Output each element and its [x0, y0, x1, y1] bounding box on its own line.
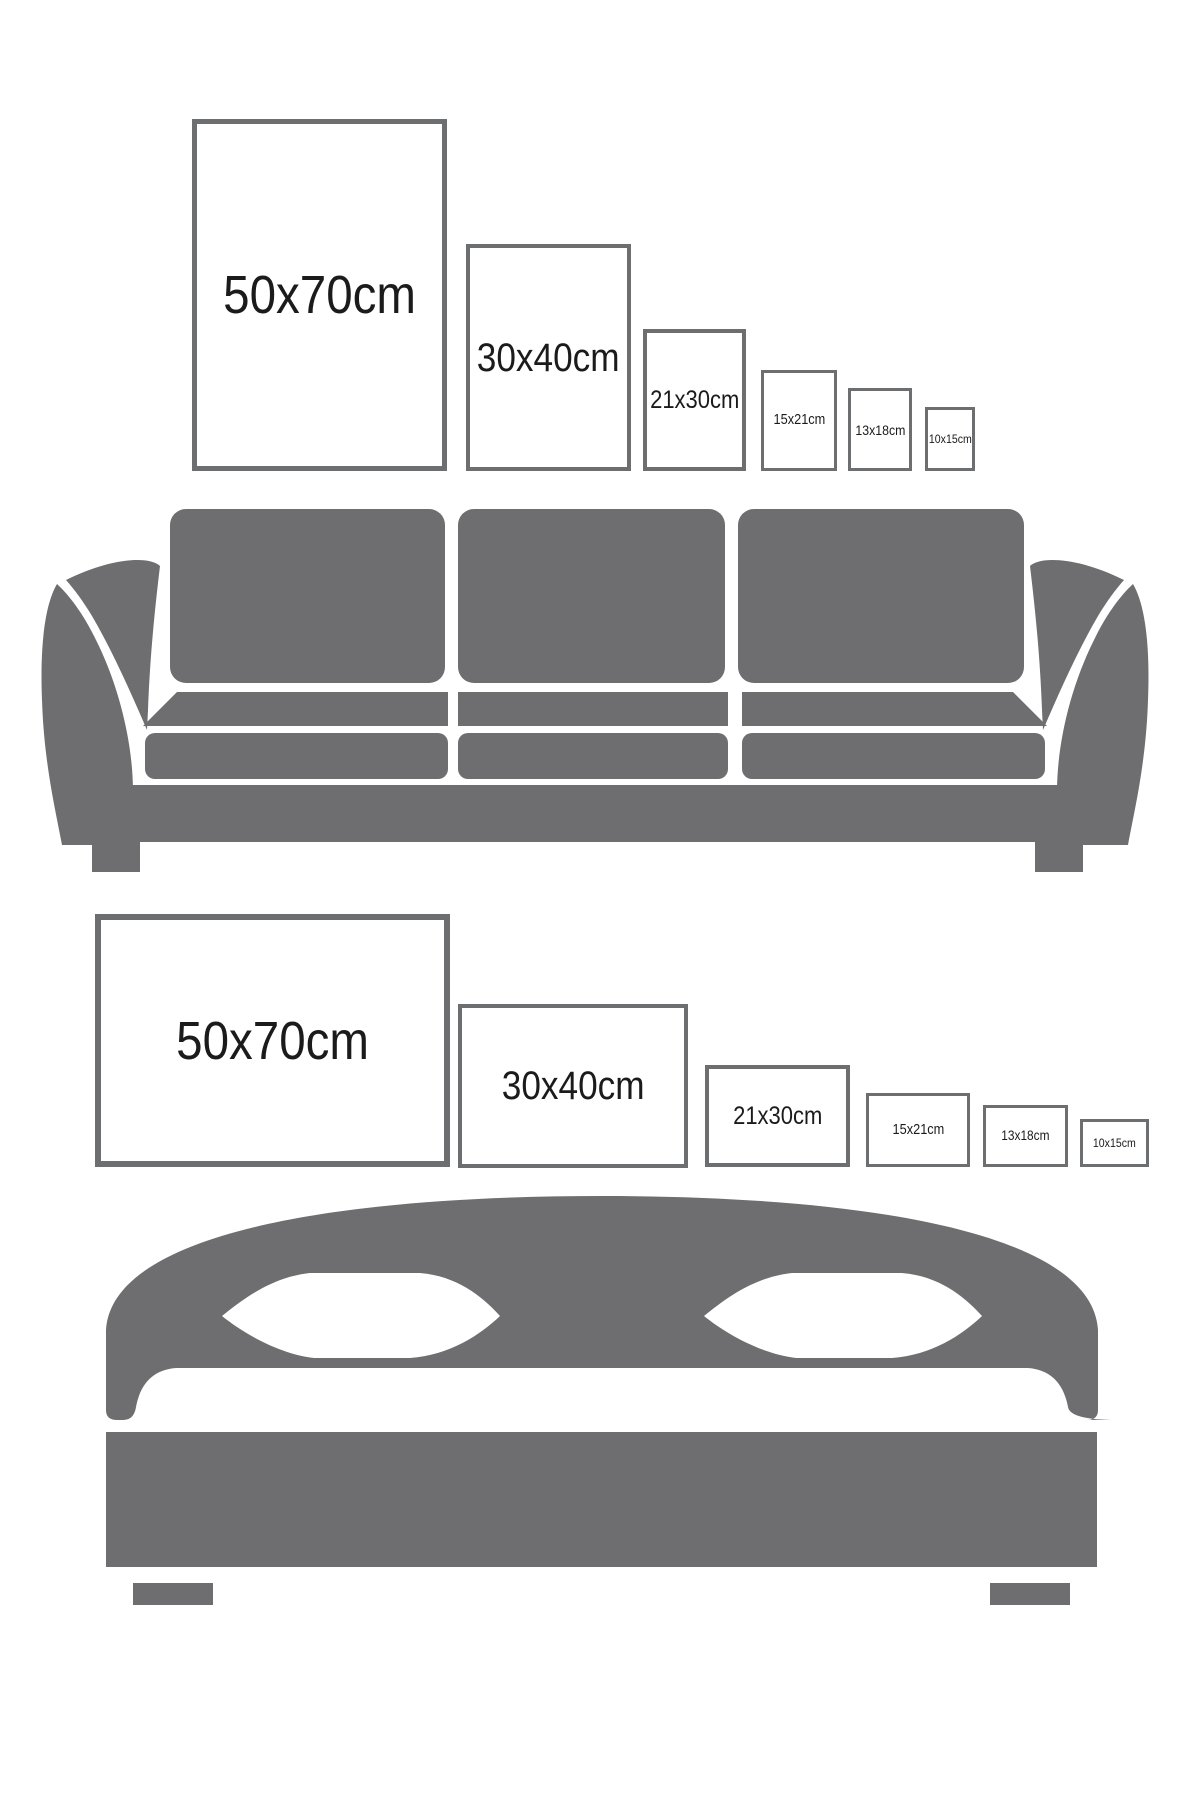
sofa-base	[68, 785, 1110, 842]
frame-portrait-10x15: 10x15cm	[925, 407, 975, 471]
frame-landscape-50x70: 50x70cm	[95, 914, 450, 1167]
frame-portrait-50x70: 50x70cm	[192, 119, 447, 471]
frame-landscape-10x15: 10x15cm	[1080, 1119, 1149, 1167]
sofa-back-cushion	[458, 509, 725, 683]
frame-portrait-13x18: 13x18cm	[848, 388, 912, 471]
frame-portrait-15x21: 15x21cm	[761, 370, 837, 471]
frame-size-label: 13x18cm	[1001, 1129, 1049, 1143]
frame-size-label: 50x70cm	[223, 268, 416, 322]
frame-size-label: 13x18cm	[855, 423, 905, 437]
frame-size-label: 10x15cm	[929, 433, 972, 445]
frame-size-label: 10x15cm	[1093, 1137, 1136, 1149]
frame-size-label: 30x40cm	[502, 1066, 645, 1106]
sofa-seat	[742, 692, 1047, 726]
frame-size-label: 21x30cm	[650, 388, 739, 413]
sofa-back-cushion	[738, 509, 1024, 683]
sofa-seat-front	[742, 733, 1045, 779]
bed-foot	[990, 1583, 1070, 1605]
sofa-foot	[92, 842, 140, 872]
frame-size-label: 30x40cm	[477, 338, 620, 378]
frame-landscape-30x40: 30x40cm	[458, 1004, 688, 1168]
frame-portrait-30x40: 30x40cm	[466, 244, 631, 471]
frame-size-label: 50x70cm	[176, 1014, 369, 1068]
sofa-seat	[458, 692, 728, 726]
bed-foot	[133, 1583, 213, 1605]
sofa-seat-front	[458, 733, 728, 779]
frame-size-label: 15x21cm	[892, 1123, 944, 1138]
poster-size-guide: 50x70cm 30x40cm 21x30cm 15x21cm 13x18cm …	[0, 0, 1200, 1800]
frame-landscape-13x18: 13x18cm	[983, 1105, 1068, 1167]
frame-landscape-21x30: 21x30cm	[705, 1065, 850, 1167]
sofa-seat	[143, 692, 448, 726]
frame-size-label: 21x30cm	[733, 1104, 822, 1129]
bed-base	[106, 1432, 1097, 1567]
bed-icon	[106, 1196, 1117, 1605]
sofa-icon	[42, 509, 1149, 872]
frame-portrait-21x30: 21x30cm	[643, 329, 746, 471]
sofa-back-cushion	[170, 509, 445, 683]
frame-size-label: 15x21cm	[773, 413, 825, 428]
frame-landscape-15x21: 15x21cm	[866, 1093, 970, 1167]
sofa-foot	[1035, 842, 1083, 872]
sofa-seat-front	[145, 733, 448, 779]
